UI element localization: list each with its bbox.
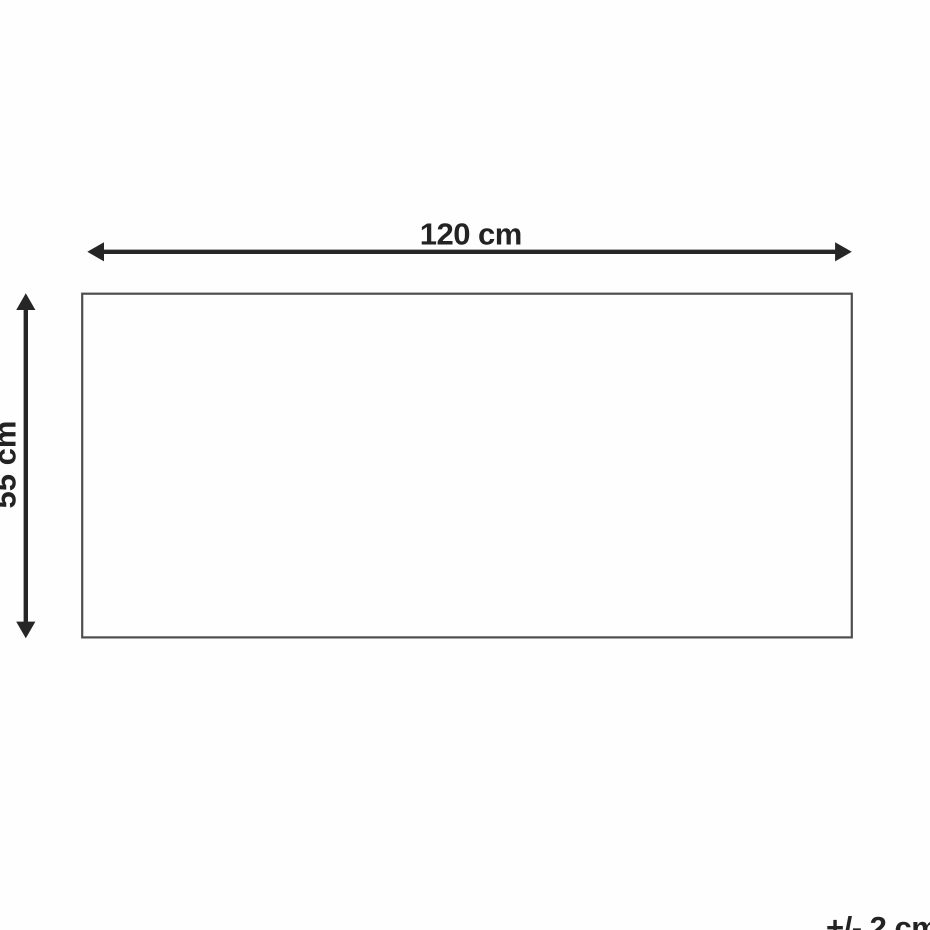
- svg-text:+/- 2 cm: +/- 2 cm: [826, 910, 930, 930]
- svg-text:55 cm: 55 cm: [0, 421, 23, 509]
- svg-text:120 cm: 120 cm: [420, 217, 522, 252]
